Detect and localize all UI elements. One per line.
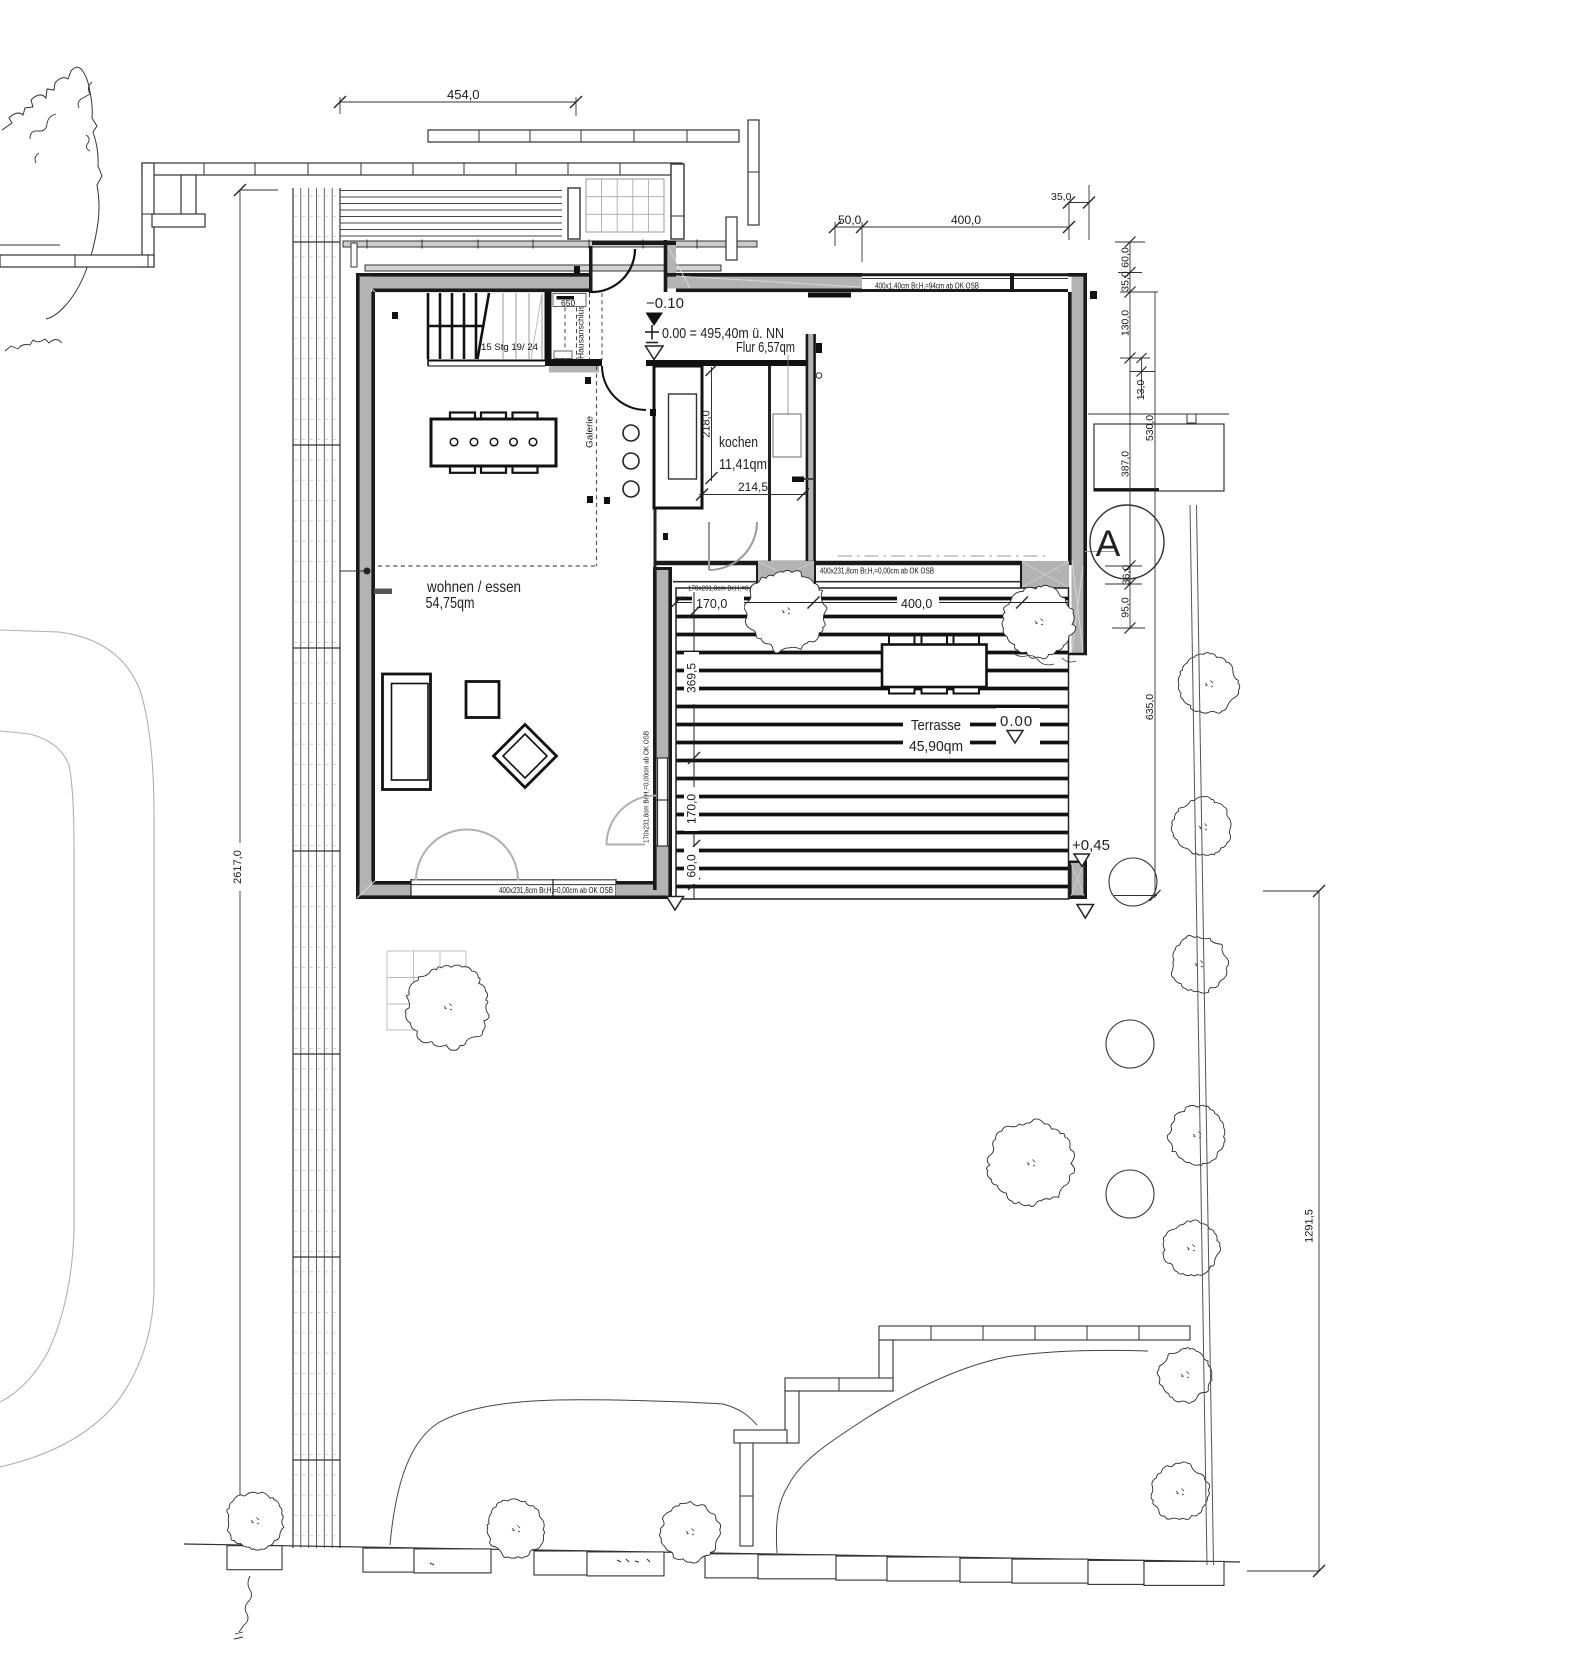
svg-text:635,0: 635,0 <box>1144 694 1156 720</box>
svg-text:95,0: 95,0 <box>1120 597 1132 618</box>
svg-text:Hausanschluss: Hausanschluss <box>576 301 586 359</box>
svg-text:36,0: 36,0 <box>1121 565 1133 586</box>
svg-text:A: A <box>1096 523 1121 564</box>
svg-text:45,90qm: 45,90qm <box>909 738 963 755</box>
svg-text:369,5: 369,5 <box>685 663 699 693</box>
svg-text:170,0: 170,0 <box>685 794 699 824</box>
svg-text:400x231,8cm Br,H,=0,00cm ab OK: 400x231,8cm Br,H,=0,00cm ab OK OSB <box>499 886 613 895</box>
svg-text:−0.10: −0.10 <box>646 295 684 312</box>
svg-text:Terrasse: Terrasse <box>911 717 961 734</box>
svg-text:454,0: 454,0 <box>447 87 480 102</box>
svg-text:60,0: 60,0 <box>1120 247 1132 268</box>
svg-text:Galerie: Galerie <box>585 416 595 448</box>
svg-text:13,0: 13,0 <box>1135 380 1147 401</box>
svg-text:170x231,8cm Br,H,=0,00cm ab OK: 170x231,8cm Br,H,=0,00cm ab OK OSB <box>642 731 651 843</box>
svg-text:214,5: 214,5 <box>738 480 768 494</box>
svg-text:2617,0: 2617,0 <box>232 850 244 884</box>
svg-text:400,0: 400,0 <box>901 597 932 611</box>
svg-text:35,0: 35,0 <box>1120 271 1132 292</box>
svg-text:130,0: 130,0 <box>1120 310 1132 336</box>
svg-text:387,0: 387,0 <box>1120 451 1132 477</box>
svg-text:400x1,40cm Br,H,=94cm ab OK OS: 400x1,40cm Br,H,=94cm ab OK OSB <box>875 282 979 291</box>
svg-text:50,0: 50,0 <box>838 213 862 227</box>
svg-text:54,75qm: 54,75qm <box>426 595 475 612</box>
svg-text:35,0: 35,0 <box>1051 191 1072 203</box>
svg-text:60,0: 60,0 <box>685 854 699 878</box>
svg-text:170,0: 170,0 <box>696 597 727 611</box>
svg-text:wohnen / essen: wohnen / essen <box>426 579 521 596</box>
svg-text:1291,5: 1291,5 <box>1304 1209 1316 1243</box>
svg-text:11,41qm: 11,41qm <box>719 456 767 473</box>
svg-text:kochen: kochen <box>719 434 758 451</box>
svg-text:530,0: 530,0 <box>1144 415 1156 441</box>
svg-text:650: 650 <box>561 298 575 308</box>
svg-text:400,0: 400,0 <box>951 213 981 227</box>
svg-text:0.00: 0.00 <box>1000 713 1033 730</box>
svg-text:218,0: 218,0 <box>701 410 713 438</box>
svg-text:+0,45: +0,45 <box>1072 837 1110 854</box>
svg-text:Flur 6,57qm: Flur 6,57qm <box>736 339 795 356</box>
svg-text:400x231,8cm Br,H,=0,00cm ab OK: 400x231,8cm Br,H,=0,00cm ab OK OSB <box>820 567 934 576</box>
svg-text:15 Stg 19/ 24: 15 Stg 19/ 24 <box>481 342 538 353</box>
